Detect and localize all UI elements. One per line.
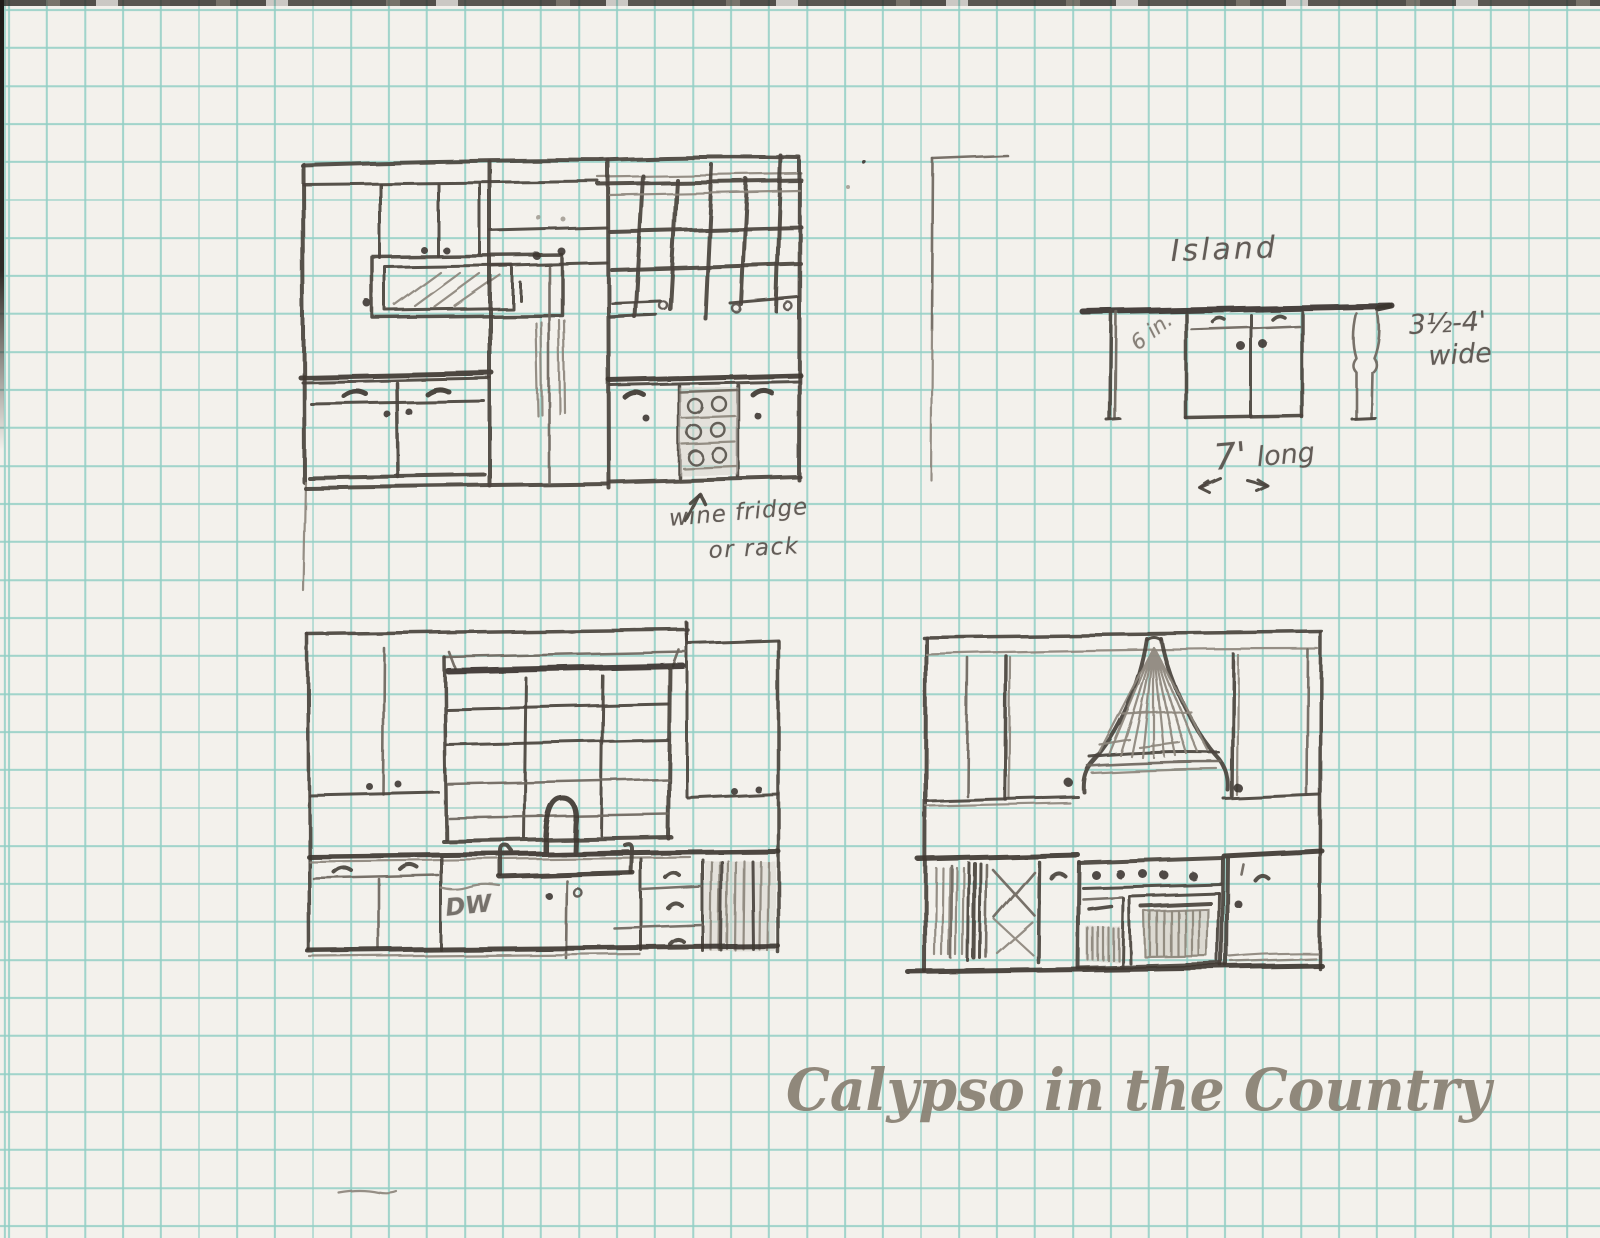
island-left-leg [1108, 312, 1121, 421]
graph-paper: Island 6 in. 3½-4' wide 7'long wine frid… [0, 0, 1600, 1238]
island-width-note: 3½-4' wide [1408, 306, 1493, 375]
base-cabinets-right [1227, 858, 1318, 966]
island-turned-leg [1352, 312, 1378, 419]
dishwasher-label: DW [444, 889, 493, 922]
island-width-line1: 3½-4' [1408, 306, 1487, 341]
stray-pencil-marks [338, 156, 1008, 1193]
island-width-line2: wide [1428, 338, 1493, 374]
sink [500, 844, 633, 958]
base-cabinets-left [935, 862, 1065, 962]
island-length-word: long [1255, 437, 1316, 473]
oven [1129, 893, 1219, 963]
base-cabinets-left [300, 373, 608, 488]
island-title-label: Island [1170, 230, 1278, 269]
island-length-note: 7'long [1212, 429, 1316, 479]
upper-cabinet-left [309, 648, 438, 795]
base-cabinets-left [313, 864, 438, 948]
wine-fridge-note-line2: or rack [708, 533, 800, 564]
upper-cabinets-left [926, 656, 1078, 806]
island-length-value: 7' [1212, 435, 1248, 479]
range-hood [1084, 638, 1228, 793]
fridge-cabinet [490, 160, 609, 488]
watermark-text: Calypso in the Country [786, 1056, 1491, 1124]
window [443, 650, 686, 841]
sketch-sink-wall-elevation [308, 622, 778, 958]
wine-fridge-base [609, 375, 800, 482]
oven-side-drawer [1083, 897, 1123, 966]
faucet [545, 798, 575, 852]
shaded-cabinet-panel [705, 861, 775, 951]
island-length-arrows [1199, 478, 1267, 492]
island-cabinet [1186, 312, 1302, 418]
upper-cabinet-left [363, 184, 480, 307]
pencil-sketch-layer [0, 0, 1600, 1238]
upper-cabinets-right [1224, 650, 1320, 799]
sketch-range-wall-elevation [908, 632, 1322, 972]
